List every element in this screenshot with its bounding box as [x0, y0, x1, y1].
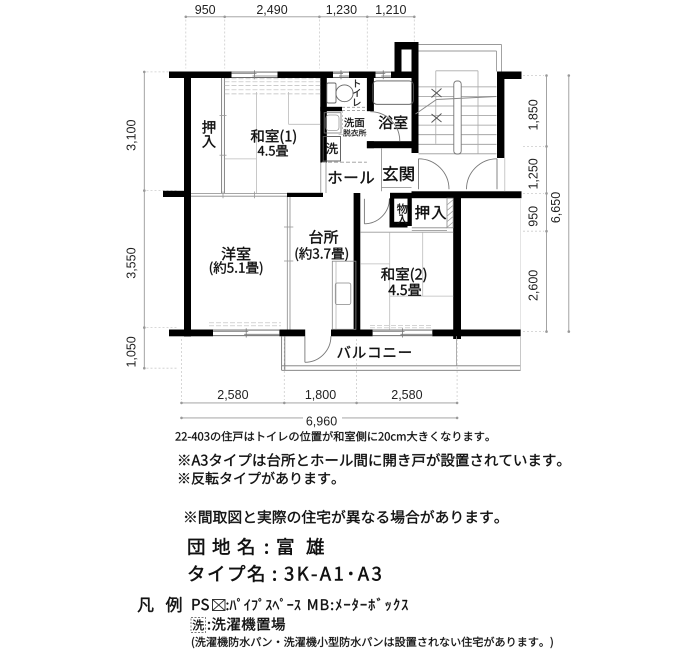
svg-text:1,800: 1,800	[305, 388, 336, 402]
svg-text:950: 950	[195, 3, 216, 17]
svg-text:2,580: 2,580	[217, 388, 248, 402]
svg-text:1,230: 1,230	[326, 3, 357, 17]
svg-text:1,250: 1,250	[527, 158, 541, 189]
svg-text:3,100: 3,100	[125, 120, 139, 151]
svg-text:6,650: 6,650	[549, 192, 563, 223]
svg-text:1,850: 1,850	[527, 99, 541, 130]
svg-text:3,550: 3,550	[125, 247, 139, 278]
svg-text:1,050: 1,050	[125, 336, 139, 367]
svg-text:950: 950	[527, 206, 541, 227]
svg-text:2,580: 2,580	[391, 388, 422, 402]
svg-text:6,960: 6,960	[306, 415, 337, 429]
svg-text:2,490: 2,490	[256, 3, 287, 17]
svg-text:1,210: 1,210	[375, 3, 406, 17]
svg-text:2,600: 2,600	[527, 270, 541, 301]
